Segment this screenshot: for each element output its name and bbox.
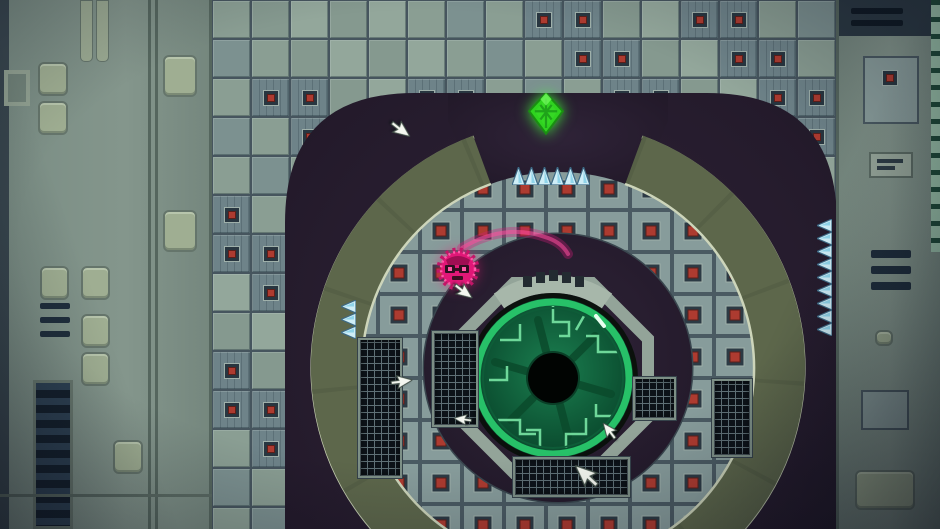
vent-slat xyxy=(871,282,911,290)
panel-box xyxy=(861,390,909,430)
vent-slot xyxy=(851,20,903,26)
spike-icon xyxy=(512,167,525,185)
vent-slat xyxy=(40,303,70,309)
wall-cap xyxy=(839,0,940,36)
chip-tile xyxy=(863,56,919,124)
label-plate xyxy=(869,152,913,178)
spike-icon xyxy=(564,167,577,185)
spike-icon xyxy=(341,300,356,313)
spike-icon xyxy=(817,245,832,258)
grid-platform xyxy=(633,377,676,420)
vent-grille xyxy=(33,380,73,529)
wall-seam xyxy=(155,0,158,529)
spike-hazard-group xyxy=(512,167,590,185)
right-machine-wall xyxy=(836,0,940,529)
wall-conduit xyxy=(96,0,109,62)
spike-icon xyxy=(817,258,832,271)
wall-seam xyxy=(0,494,212,497)
spike-icon xyxy=(817,323,832,336)
spike-hazard-group xyxy=(817,219,832,336)
spike-icon xyxy=(817,310,832,323)
access-plate xyxy=(163,55,197,97)
spike-icon xyxy=(817,219,832,232)
spike-icon xyxy=(341,313,356,326)
access-plate xyxy=(81,266,110,300)
vent-slat xyxy=(40,317,70,323)
pipe-bracket xyxy=(4,70,30,106)
access-plate xyxy=(40,266,69,300)
vent-slat xyxy=(871,250,911,258)
game-viewport[interactable] xyxy=(0,0,940,529)
spike-icon xyxy=(551,167,564,185)
access-plate xyxy=(163,210,197,252)
ladder-strip xyxy=(931,0,940,252)
spike-icon xyxy=(525,167,538,185)
vent-slat xyxy=(40,331,70,337)
spike-icon xyxy=(577,167,590,185)
spike-hazard-group xyxy=(341,300,356,339)
access-plate xyxy=(113,440,143,474)
spike-icon xyxy=(817,297,832,310)
access-plate xyxy=(875,330,893,346)
access-plate xyxy=(855,470,915,510)
access-plate xyxy=(38,62,68,96)
left-machine-wall xyxy=(0,0,212,529)
spike-icon xyxy=(817,232,832,245)
grid-platform xyxy=(712,379,752,457)
vent-slat xyxy=(871,266,911,274)
grid-platform xyxy=(513,457,630,497)
wall-conduit xyxy=(80,0,93,62)
gem-pickup xyxy=(527,93,565,139)
access-plate xyxy=(81,352,110,386)
spike-icon xyxy=(538,167,551,185)
access-plate xyxy=(81,314,110,348)
wall-seam xyxy=(148,0,151,529)
gem-icon xyxy=(527,93,565,135)
grid-platform xyxy=(432,331,478,427)
spike-icon xyxy=(817,271,832,284)
spike-icon xyxy=(817,284,832,297)
grid-platform xyxy=(358,338,402,478)
vent-slot xyxy=(851,8,903,14)
access-plate xyxy=(38,101,68,135)
spike-icon xyxy=(341,326,356,339)
